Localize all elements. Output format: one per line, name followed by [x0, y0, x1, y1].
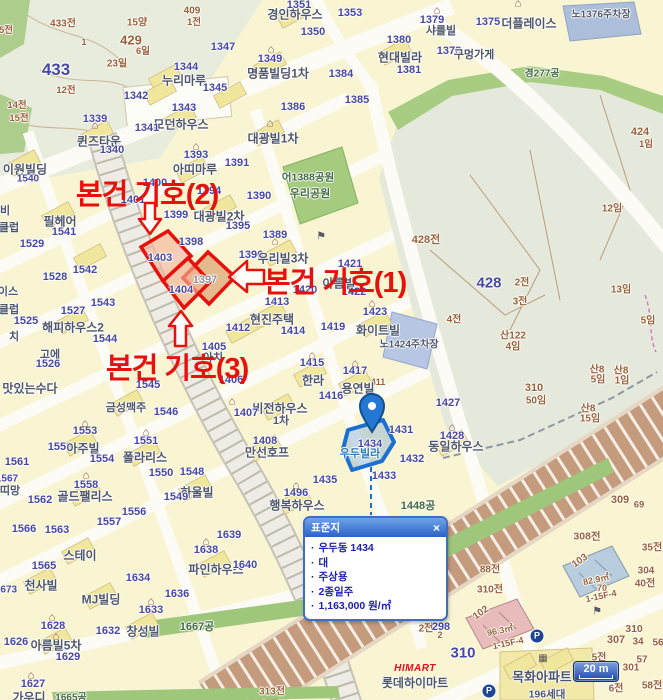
subject-annotation-text: 본건 기호(1) [264, 259, 406, 301]
popup-close-icon[interactable]: × [433, 523, 440, 533]
popup-item: ·대 [311, 556, 440, 571]
himart-logo: HIMART [370, 663, 460, 674]
popup-item-list: ·우두동 1434·대·주상용·2종일주·1,163,000 원/㎡ [305, 537, 446, 619]
popup-titlebar[interactable]: 표준지 × [305, 518, 446, 537]
map-canvas[interactable]: 433전15양4091전4296일23일43315전12전14전15전1342누… [0, 0, 663, 700]
scale-label: 20 m [583, 663, 608, 675]
subject-annotation-text: 본건 기호(3) [106, 345, 248, 387]
popup-item: ·우두동 1434 [311, 541, 440, 556]
standard-land-price-popup[interactable]: 표준지 × ·우두동 1434·대·주상용·2종일주·1,163,000 원/㎡ [303, 516, 448, 621]
popup-title: 표준지 [311, 520, 340, 535]
map-scale-badge: 20 m [573, 661, 619, 682]
himart-korean-name: 롯데하이마트 [370, 674, 460, 691]
popup-item: ·주상용 [311, 570, 440, 585]
himart-store-label: HIMART 롯데하이마트 [370, 663, 460, 691]
popup-item: ·2종일주 [311, 585, 440, 600]
popup-item: ·1,163,000 원/㎡ [311, 599, 440, 614]
parking-lot-north [563, 2, 641, 41]
scale-bar [579, 675, 613, 679]
subject-annotation-text: 본건 기호(2) [76, 171, 218, 213]
